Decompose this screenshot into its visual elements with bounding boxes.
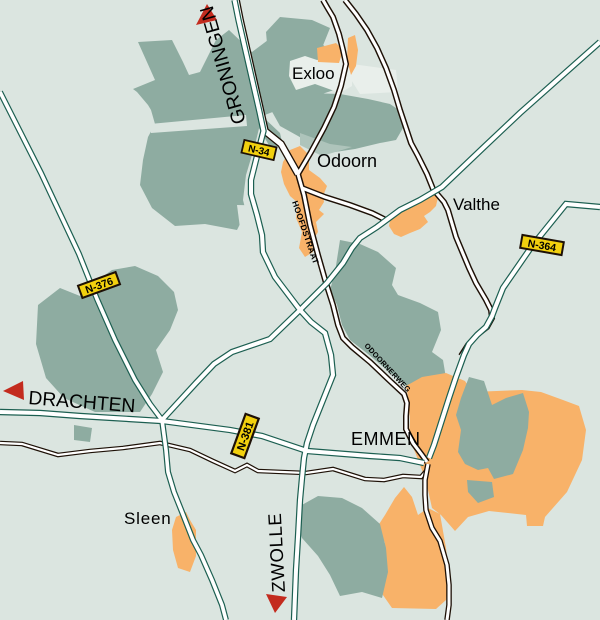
svg-text:Odoorn: Odoorn — [317, 151, 377, 171]
svg-text:EMMEN: EMMEN — [351, 429, 421, 449]
svg-text:Sleen: Sleen — [124, 509, 171, 528]
svg-text:ZWOLLE: ZWOLLE — [264, 512, 289, 593]
svg-text:Valthe: Valthe — [453, 195, 500, 214]
svg-text:Exloo: Exloo — [292, 64, 335, 83]
